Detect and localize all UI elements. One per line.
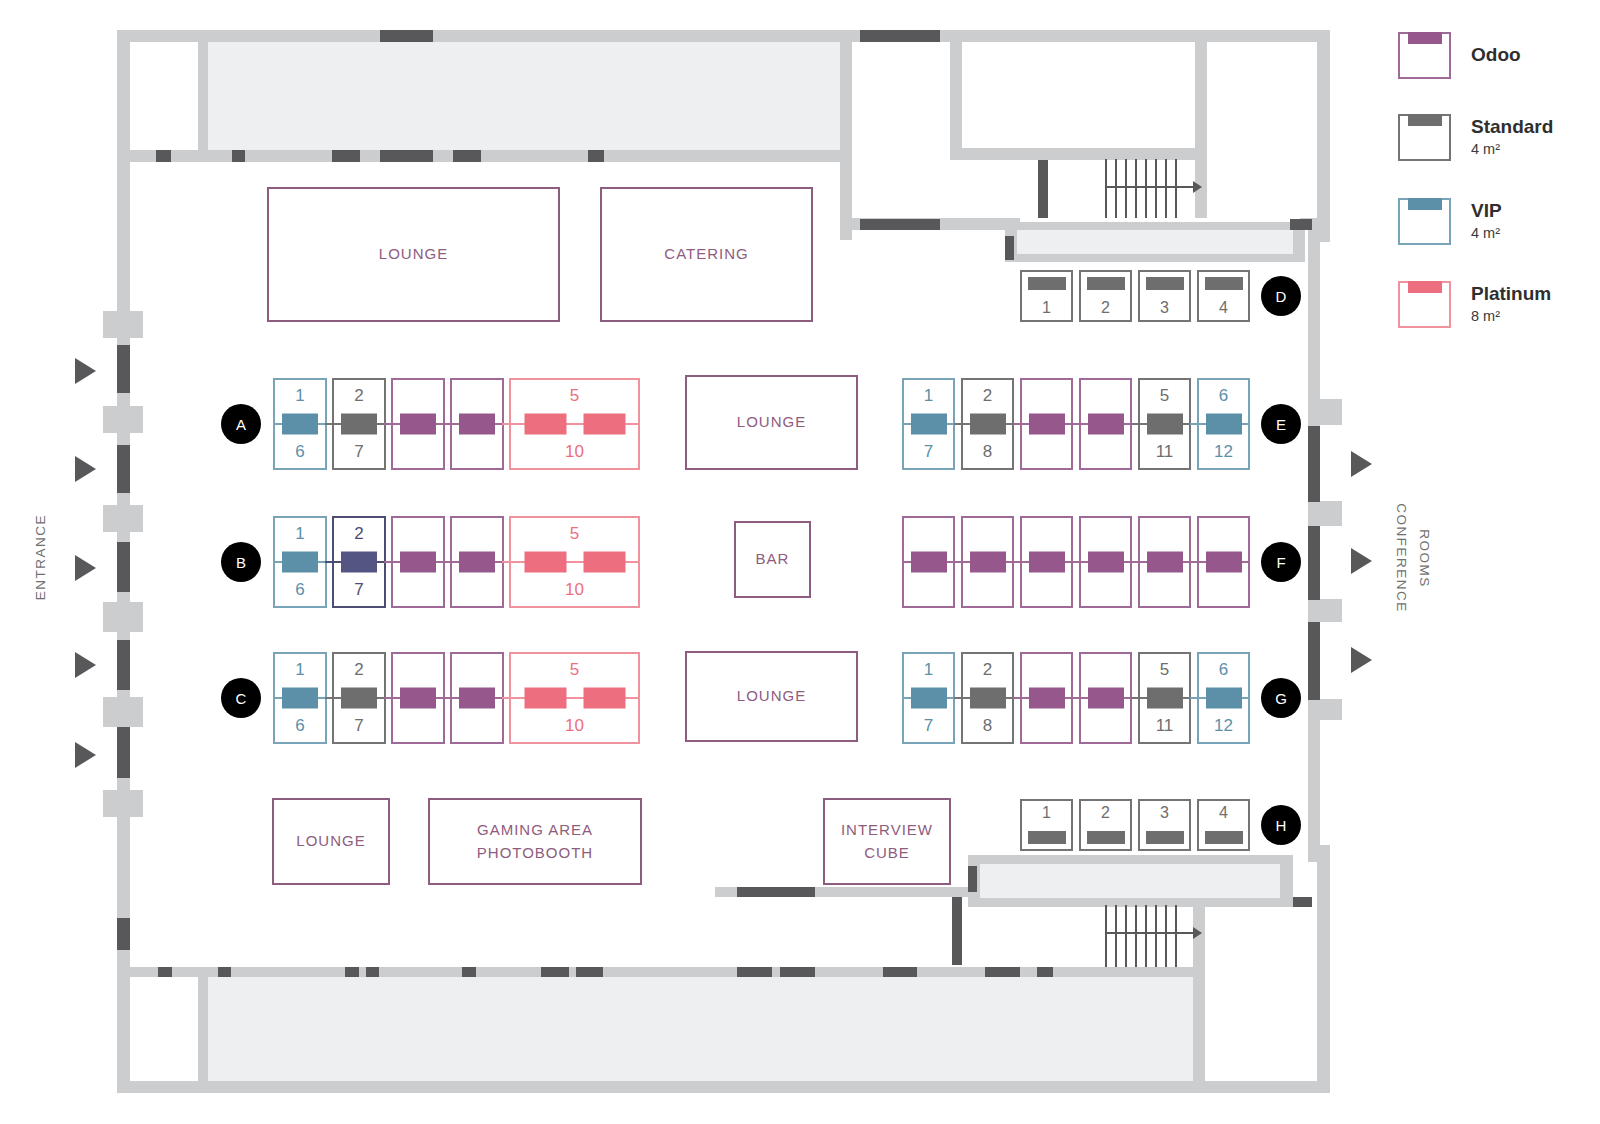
booth-bar-icon — [1206, 414, 1242, 435]
booth-number-bottom: 8 — [963, 716, 1012, 736]
area-lounge-low: LOUNGE — [685, 651, 858, 742]
booth-row-D: 1234 — [1020, 270, 1250, 322]
door-segment — [380, 150, 433, 162]
door-segment — [883, 967, 917, 977]
booth-bar-icon — [524, 552, 566, 573]
booth-A-4[interactable] — [450, 378, 504, 470]
wall-segment — [117, 30, 1330, 42]
booth-A-2[interactable]: 27 — [332, 378, 386, 470]
area-gaming-photobooth: GAMING AREA PHOTOBOOTH — [428, 798, 642, 885]
booth-F-3[interactable] — [1020, 516, 1073, 608]
booth-bars-icon — [524, 414, 625, 435]
booth-number: 1 — [1022, 299, 1071, 317]
platinum-booth-icon — [1398, 281, 1451, 328]
direction-arrow-icon — [75, 555, 96, 581]
standard-booth-icon — [1398, 114, 1451, 161]
booth-bar-icon — [1408, 32, 1442, 44]
door-segment — [117, 542, 130, 592]
booth-number-bottom: 10 — [511, 716, 638, 736]
door-segment — [117, 727, 130, 778]
booth-row-H: 1234 — [1020, 799, 1250, 851]
door-segment — [117, 345, 130, 393]
booth-B-1[interactable]: 16 — [273, 516, 327, 608]
row-marker-letter: A — [236, 416, 246, 433]
wall-segment — [1195, 42, 1207, 160]
direction-arrow-icon — [1351, 647, 1372, 673]
door-segment — [117, 918, 130, 950]
wall-segment — [1308, 399, 1342, 425]
wall-segment — [103, 790, 143, 817]
booth-number-top: 1 — [904, 386, 953, 406]
booth-number-top: 2 — [334, 386, 384, 406]
wall-segment — [1317, 845, 1330, 1093]
booth-C-4[interactable] — [450, 652, 504, 744]
booth-bar-icon — [400, 552, 436, 573]
booth-F-1[interactable] — [902, 516, 955, 608]
direction-arrow-icon — [75, 652, 96, 678]
row-marker-E: E — [1261, 404, 1301, 444]
room-area — [1017, 230, 1293, 254]
entrance-label: ENTRANCE — [33, 514, 48, 600]
booth-bar-icon — [1147, 552, 1183, 573]
area-label: GAMING AREA — [477, 819, 593, 842]
booth-number: 1 — [1022, 804, 1071, 822]
booth-bar-icon — [1028, 277, 1066, 290]
booth-row-B: 1627510 — [273, 516, 640, 608]
room-area — [208, 42, 840, 150]
booth-number: 3 — [1140, 804, 1189, 822]
stair-treads — [1105, 159, 1177, 218]
row-marker-F: F — [1261, 542, 1301, 582]
booth-G-2[interactable]: 28 — [961, 652, 1014, 744]
booth-E-6[interactable]: 612 — [1197, 378, 1250, 470]
area-label: LOUNGE — [737, 685, 806, 708]
direction-arrow-icon — [75, 742, 96, 768]
booth-bar-icon — [341, 414, 377, 435]
booth-number-top: 5 — [511, 386, 638, 406]
booth-number-top: 1 — [275, 386, 325, 406]
booth-number-bottom: 6 — [275, 442, 325, 462]
booth-bar-icon — [1147, 414, 1183, 435]
door-segment — [380, 30, 433, 42]
floor-plan: 1627510A1627510B1627510C1234D1728511612E… — [0, 0, 1600, 1124]
legend-name: Standard — [1471, 116, 1553, 138]
stairs-direction-arrow-icon — [1105, 932, 1193, 934]
booth-C-1[interactable]: 16 — [273, 652, 327, 744]
door-segment — [218, 967, 231, 977]
booth-bar-icon — [970, 688, 1006, 709]
stairs-icon — [1105, 905, 1177, 967]
booth-bar-icon — [341, 688, 377, 709]
door-segment — [860, 30, 940, 42]
booth-A-3[interactable] — [391, 378, 445, 470]
booth-bar-icon — [911, 552, 947, 573]
booth-bar-icon — [341, 552, 377, 573]
stair-treads — [1105, 905, 1177, 967]
booth-G-5[interactable]: 511 — [1138, 652, 1191, 744]
wall-segment — [103, 697, 143, 727]
door-segment — [453, 150, 481, 162]
booth-number-top: 2 — [963, 660, 1012, 680]
door-segment — [737, 887, 815, 897]
booth-row-C: 1627510 — [273, 652, 640, 744]
booth-bars-icon — [524, 688, 625, 709]
door-segment — [332, 150, 360, 162]
legend-name: Platinum — [1471, 283, 1551, 305]
booth-bar-icon — [911, 414, 947, 435]
door-segment — [588, 150, 604, 162]
conference-rooms-line: CONFERENCE — [1389, 503, 1412, 613]
door-segment — [1038, 160, 1048, 218]
door-segment — [232, 150, 245, 162]
booth-number-bottom: 7 — [334, 442, 384, 462]
booth-number-bottom: 7 — [334, 716, 384, 736]
row-marker-B: B — [221, 542, 261, 582]
row-marker-D: D — [1261, 276, 1301, 316]
wall-segment — [103, 602, 143, 632]
booth-number-top: 1 — [275, 660, 325, 680]
door-segment — [117, 640, 130, 690]
vip-booth-icon — [1398, 198, 1451, 245]
booth-F-5[interactable] — [1138, 516, 1191, 608]
area-label: CATERING — [664, 243, 748, 266]
door-segment — [1037, 967, 1053, 977]
row-marker-G: G — [1261, 678, 1301, 718]
row-marker-letter: D — [1276, 288, 1287, 305]
door-segment — [576, 967, 603, 977]
booth-bar-icon — [1029, 414, 1065, 435]
area-lounge-top: LOUNGE — [267, 187, 560, 322]
door-segment — [462, 967, 476, 977]
legend-size: 4 m² — [1471, 141, 1553, 157]
booth-bar-icon — [1146, 831, 1184, 844]
row-marker-C: C — [221, 678, 261, 718]
booth-A-5[interactable]: 510 — [509, 378, 640, 470]
booth-D-1[interactable]: 1 — [1020, 270, 1073, 322]
booth-D-3[interactable]: 3 — [1138, 270, 1191, 322]
booth-row-F — [902, 516, 1250, 608]
booth-D-2[interactable]: 2 — [1079, 270, 1132, 322]
booth-C-3[interactable] — [391, 652, 445, 744]
door-segment — [1308, 622, 1320, 700]
wall-segment — [950, 42, 962, 160]
door-segment — [985, 967, 1020, 977]
door-segment — [156, 150, 171, 162]
door-segment — [366, 967, 379, 977]
booth-number: 2 — [1081, 804, 1130, 822]
direction-arrow-icon — [1351, 451, 1372, 477]
booth-bar-icon — [970, 414, 1006, 435]
booth-bar-icon — [1408, 198, 1442, 210]
booth-A-1[interactable]: 16 — [273, 378, 327, 470]
booth-bar-icon — [282, 552, 318, 573]
booth-F-4[interactable] — [1079, 516, 1132, 608]
booth-bar-icon — [1028, 831, 1066, 844]
door-segment — [158, 967, 172, 977]
booth-B-2[interactable]: 27 — [332, 516, 386, 608]
booth-bar-icon — [1205, 277, 1243, 290]
row-marker-letter: F — [1276, 554, 1285, 571]
booth-bar-icon — [1206, 688, 1242, 709]
area-lounge-bottom: LOUNGE — [272, 798, 390, 885]
booth-row-E: 1728511612 — [902, 378, 1250, 470]
booth-bar-icon — [583, 414, 625, 435]
booth-F-6[interactable] — [1197, 516, 1250, 608]
booth-bar-icon — [459, 414, 495, 435]
legend-entry-vip: VIP 4 m² — [1398, 198, 1502, 245]
booth-number-bottom: 7 — [904, 442, 953, 462]
legend-entry-odoo: Odoo — [1398, 32, 1521, 79]
conference-rooms-label: CONFERENCE ROOMS — [1389, 503, 1435, 613]
booth-bar-icon — [1087, 831, 1125, 844]
wall-segment — [1308, 599, 1342, 622]
stairs-arrowhead-icon — [1193, 181, 1202, 193]
booth-number-bottom: 6 — [275, 580, 325, 600]
booth-number-bottom: 12 — [1199, 716, 1248, 736]
booth-number-top: 1 — [275, 524, 325, 544]
row-marker-letter: C — [236, 690, 247, 707]
legend-size: 8 m² — [1471, 308, 1551, 324]
wall-segment — [117, 1081, 1330, 1093]
booth-number-top: 1 — [904, 660, 953, 680]
area-catering: CATERING — [600, 187, 813, 322]
room-area — [980, 864, 1280, 898]
door-segment — [117, 445, 130, 493]
booth-D-4[interactable]: 4 — [1197, 270, 1250, 322]
area-label: LOUNGE — [296, 830, 365, 853]
booth-number-bottom: 6 — [275, 716, 325, 736]
booth-E-5[interactable]: 511 — [1138, 378, 1191, 470]
booth-number-top: 2 — [334, 524, 384, 544]
booth-bars-icon — [524, 552, 625, 573]
booth-F-2[interactable] — [961, 516, 1014, 608]
booth-bar-icon — [1087, 277, 1125, 290]
booth-bar-icon — [459, 688, 495, 709]
legend-entry-platinum: Platinum 8 m² — [1398, 281, 1551, 328]
room-area — [208, 977, 1193, 1081]
door-segment — [952, 897, 962, 965]
booth-bar-icon — [524, 688, 566, 709]
area-label: INTERVIEW — [841, 819, 933, 842]
row-marker-H: H — [1261, 805, 1301, 845]
stairs-arrowhead-icon — [1193, 927, 1202, 939]
booth-G-6[interactable]: 612 — [1197, 652, 1250, 744]
booth-number-top: 6 — [1199, 660, 1248, 680]
area-label: PHOTOBOOTH — [477, 842, 593, 865]
booth-C-2[interactable]: 27 — [332, 652, 386, 744]
booth-G-1[interactable]: 17 — [902, 652, 955, 744]
booth-bar-icon — [282, 688, 318, 709]
booth-number-bottom: 11 — [1140, 442, 1189, 462]
area-lounge-mid: LOUNGE — [685, 375, 858, 470]
booth-number: 4 — [1199, 299, 1248, 317]
wall-segment — [1308, 501, 1342, 526]
area-interview-cube: INTERVIEW CUBE — [823, 798, 951, 885]
door-segment — [780, 967, 815, 977]
booth-bar-icon — [583, 688, 625, 709]
booth-number-top: 6 — [1199, 386, 1248, 406]
booth-number-top: 2 — [963, 386, 1012, 406]
legend-name: VIP — [1471, 200, 1502, 222]
booth-bar-icon — [282, 414, 318, 435]
booth-bar-icon — [400, 414, 436, 435]
wall-segment — [1308, 699, 1342, 720]
booth-E-4[interactable] — [1079, 378, 1132, 470]
door-segment — [737, 967, 772, 977]
booth-H-2[interactable]: 2 — [1079, 799, 1132, 851]
booth-bar-icon — [1408, 114, 1442, 126]
booth-bar-icon — [970, 552, 1006, 573]
direction-arrow-icon — [75, 456, 96, 482]
booth-bar-icon — [524, 414, 566, 435]
booth-bar-icon — [1088, 414, 1124, 435]
wall-segment — [103, 406, 143, 433]
booth-bar-icon — [583, 552, 625, 573]
booth-number-bottom: 7 — [904, 716, 953, 736]
booth-bar-icon — [911, 688, 947, 709]
wall-segment — [840, 42, 852, 240]
wall-segment — [117, 967, 1195, 977]
booth-number: 2 — [1081, 299, 1130, 317]
booth-E-1[interactable]: 17 — [902, 378, 955, 470]
wall-segment — [103, 505, 143, 532]
direction-arrow-icon — [75, 358, 96, 384]
booth-E-2[interactable]: 28 — [961, 378, 1014, 470]
direction-arrow-icon — [1351, 548, 1372, 574]
booth-number-bottom: 12 — [1199, 442, 1248, 462]
door-segment — [1005, 236, 1014, 260]
booth-row-A: 1627510 — [273, 378, 640, 470]
booth-E-3[interactable] — [1020, 378, 1073, 470]
row-marker-A: A — [221, 404, 261, 444]
booth-number-top: 5 — [511, 524, 638, 544]
booth-bar-icon — [1088, 552, 1124, 573]
booth-bar-icon — [1029, 688, 1065, 709]
door-segment — [1293, 897, 1312, 907]
booth-number-bottom: 8 — [963, 442, 1012, 462]
booth-number-bottom: 10 — [511, 442, 638, 462]
booth-C-5[interactable]: 510 — [509, 652, 640, 744]
legend-size: 4 m² — [1471, 225, 1502, 241]
booth-bar-icon — [1029, 552, 1065, 573]
door-segment — [860, 219, 940, 230]
door-segment — [345, 967, 359, 977]
booth-G-4[interactable] — [1079, 652, 1132, 744]
wall-segment — [198, 42, 208, 150]
door-segment — [541, 967, 569, 977]
booth-number-bottom: 7 — [334, 580, 384, 600]
booth-number-bottom: 11 — [1140, 716, 1189, 736]
area-label: CUBE — [864, 842, 910, 865]
booth-bar-icon — [1206, 552, 1242, 573]
row-marker-letter: G — [1275, 690, 1287, 707]
stairs-icon — [1105, 159, 1177, 218]
booth-number-top: 5 — [1140, 386, 1189, 406]
booth-number: 4 — [1199, 804, 1248, 822]
area-label: BAR — [756, 548, 790, 571]
wall-segment — [103, 311, 143, 338]
door-segment — [1290, 219, 1312, 230]
booth-H-1[interactable]: 1 — [1020, 799, 1073, 851]
booth-number-bottom: 10 — [511, 580, 638, 600]
legend-entry-standard: Standard 4 m² — [1398, 114, 1553, 161]
booth-B-5[interactable]: 510 — [509, 516, 640, 608]
booth-bar-icon — [459, 552, 495, 573]
booth-bar-icon — [1147, 688, 1183, 709]
booth-G-3[interactable] — [1020, 652, 1073, 744]
booth-B-4[interactable] — [450, 516, 504, 608]
area-bar: BAR — [734, 521, 811, 598]
booth-number-top: 5 — [1140, 660, 1189, 680]
booth-H-3[interactable]: 3 — [1138, 799, 1191, 851]
booth-bar-icon — [1088, 688, 1124, 709]
booth-bar-icon — [1146, 277, 1184, 290]
area-label: LOUNGE — [379, 243, 448, 266]
booth-bar-icon — [400, 688, 436, 709]
legend-name: Odoo — [1471, 44, 1521, 66]
booth-bar-icon — [1205, 831, 1243, 844]
odoo-booth-icon — [1398, 32, 1451, 79]
row-marker-letter: E — [1276, 416, 1286, 433]
row-marker-letter: H — [1276, 817, 1287, 834]
door-segment — [1308, 526, 1320, 600]
row-marker-letter: B — [236, 554, 246, 571]
booth-B-3[interactable] — [391, 516, 445, 608]
conference-rooms-line: ROOMS — [1412, 503, 1435, 613]
booth-number-top: 5 — [511, 660, 638, 680]
wall-segment — [198, 977, 208, 1081]
door-segment — [968, 866, 977, 892]
booth-row-G: 1728511612 — [902, 652, 1250, 744]
booth-H-4[interactable]: 4 — [1197, 799, 1250, 851]
booth-number-top: 2 — [334, 660, 384, 680]
area-label: LOUNGE — [737, 411, 806, 434]
door-segment — [1308, 426, 1320, 502]
stairs-direction-arrow-icon — [1105, 186, 1193, 188]
booth-number: 3 — [1140, 299, 1189, 317]
wall-segment — [1317, 30, 1330, 242]
booth-bar-icon — [1408, 281, 1442, 293]
